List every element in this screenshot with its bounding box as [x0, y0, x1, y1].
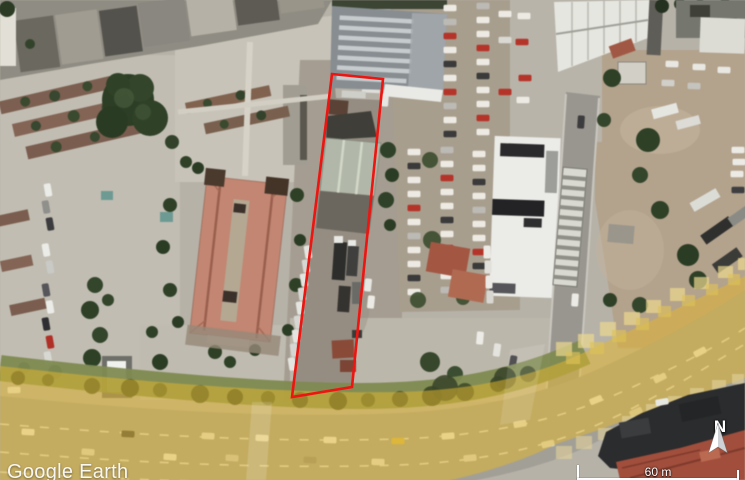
- north-arrow-icon: [702, 422, 734, 456]
- scale-bar: 60 m: [577, 463, 739, 480]
- aerial-imagery: [0, 0, 745, 480]
- scale-bar-label: 60 m: [577, 465, 739, 479]
- industrial-building-skylights: [330, 0, 447, 102]
- google-earth-watermark: Google Earth: [7, 461, 128, 480]
- white-flat-roof-building: [489, 136, 561, 298]
- satellite-map-view[interactable]: Google Earth N 60 m: [0, 0, 745, 480]
